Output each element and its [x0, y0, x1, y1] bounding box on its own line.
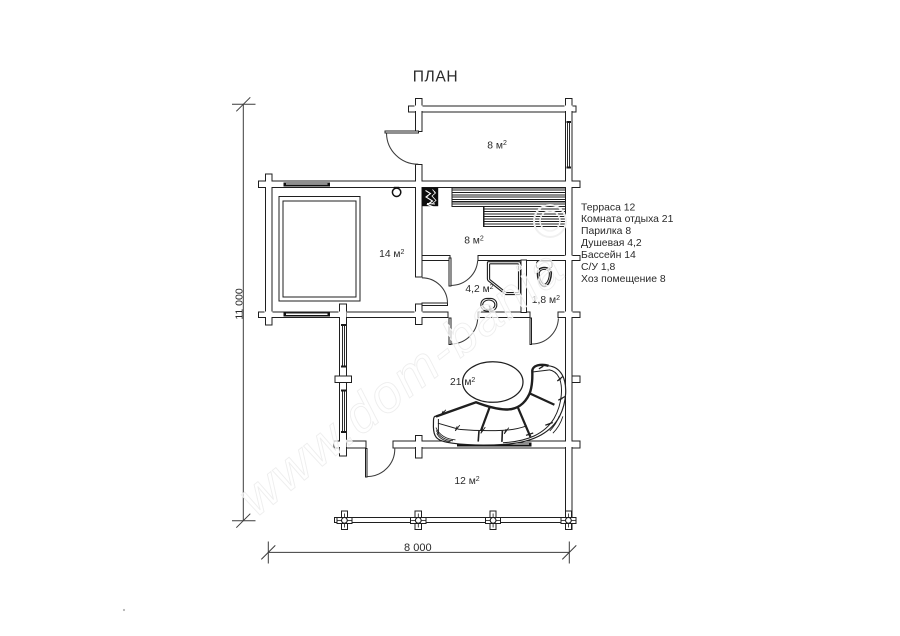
- svg-text:С/У 1,8: С/У 1,8: [581, 262, 616, 273]
- svg-text:11 000: 11 000: [233, 288, 245, 319]
- svg-text:Комната отдыха 21: Комната отдыха 21: [581, 214, 674, 225]
- svg-text:Бассейн 14: Бассейн 14: [581, 250, 636, 261]
- svg-text:8 000: 8 000: [404, 542, 432, 554]
- svg-text:Хоз помещение 8: Хоз помещение 8: [581, 274, 666, 285]
- svg-text:Терраса 12: Терраса 12: [581, 202, 636, 213]
- svg-text:ПЛАН: ПЛАН: [413, 68, 459, 85]
- svg-text:Парилка 8: Парилка 8: [581, 226, 631, 237]
- svg-text:Душевая 4,2: Душевая 4,2: [581, 238, 642, 249]
